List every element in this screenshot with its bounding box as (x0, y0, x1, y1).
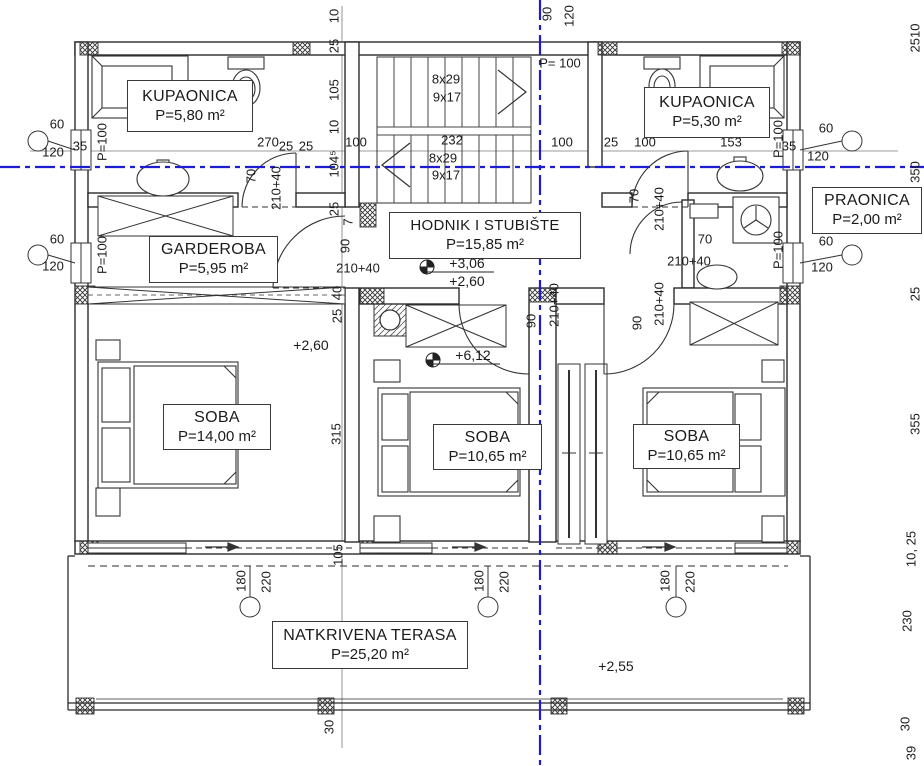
bed-middle (374, 360, 520, 542)
terrace-outline (68, 556, 810, 710)
floor-plan: 6012035270252510023210025100153351206060… (0, 0, 924, 766)
wardrobes (558, 364, 607, 544)
bed-left (96, 340, 238, 516)
washbasin-right (717, 157, 763, 191)
toilet-left (228, 57, 264, 106)
bathtub-left (92, 56, 188, 118)
bed-right (643, 360, 785, 542)
shaft (374, 304, 406, 336)
plan-linework (0, 0, 924, 766)
washing-machine (690, 197, 779, 243)
washbasin-praonica (697, 265, 737, 289)
toilet-right (644, 57, 680, 103)
staircase (377, 57, 588, 203)
washbasin-left (137, 160, 189, 196)
bathtub-right (700, 56, 784, 118)
